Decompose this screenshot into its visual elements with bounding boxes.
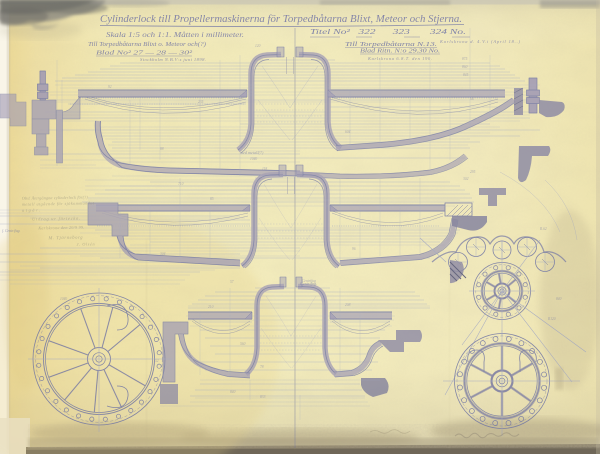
svg-text:Blad Ritn. N:o 29.30 No.: Blad Ritn. N:o 29.30 No. <box>360 48 440 55</box>
svg-text:120: 120 <box>255 44 261 48</box>
svg-text:1040: 1040 <box>60 297 67 301</box>
svg-text:78: 78 <box>260 365 264 369</box>
svg-text:210: 210 <box>208 305 214 309</box>
svg-text:295: 295 <box>470 170 476 174</box>
svg-text:Titel No² 322 323: Titel No² 322 323 324 No. <box>310 28 466 36</box>
svg-text:604: 604 <box>345 130 351 134</box>
svg-text:833: 833 <box>260 395 266 399</box>
svg-text:1040: 1040 <box>250 157 257 161</box>
svg-text:57: 57 <box>230 280 234 284</box>
svg-text:302: 302 <box>463 177 469 181</box>
svg-text:560: 560 <box>240 342 246 346</box>
svg-text:Skala 1:5 och 1:1. Måtten i: Skala 1:5 och 1:1. Måtten i millimeter. <box>106 31 244 39</box>
svg-text:845: 845 <box>463 73 469 77</box>
svg-text:118: 118 <box>262 167 267 171</box>
svg-text:208: 208 <box>345 303 351 307</box>
svg-text:Till Torpedbåtarna Blixt o. Me: Till Torpedbåtarna Blixt o. Meteor och(?… <box>88 41 206 48</box>
svg-text:Cylinderlock till Propellermas: Cylinderlock till Propellermaskinerna fö… <box>100 14 462 25</box>
svg-text:304: 304 <box>160 252 166 256</box>
svg-text:56: 56 <box>470 97 474 101</box>
svg-text:Utdrag ur förteckn.: Utdrag ur förteckn. <box>32 216 80 222</box>
svg-text:710: 710 <box>178 182 184 186</box>
svg-text:Karlskrona den 20/9 99.: Karlskrona den 20/9 99. <box>37 225 84 231</box>
svg-text:Blad No² 27 — 28 — 30²: Blad No² 27 — 28 — 30² <box>96 50 194 57</box>
svg-text:f. Centrifug.: f. Centrifug. <box>2 229 21 233</box>
svg-text:96: 96 <box>352 247 356 251</box>
svg-text:Karlskrona 6.8.T. den 190.: Karlskrona 6.8.T. den 190. <box>367 56 432 61</box>
svg-text:88: 88 <box>160 147 164 151</box>
svg-text:R.62: R.62 <box>539 227 547 231</box>
svg-text:840: 840 <box>230 390 236 394</box>
svg-text:85: 85 <box>210 197 214 201</box>
svg-text:R120: R120 <box>547 317 556 321</box>
svg-text:Stockholm N.B.V:s juni 1898.: Stockholm N.B.V:s juni 1898. <box>140 57 206 62</box>
svg-text:92: 92 <box>108 85 112 89</box>
svg-text:med metall(?): med metall(?) <box>240 150 264 155</box>
svg-text:J. Olsén: J. Olsén <box>77 241 95 246</box>
svg-text:235: 235 <box>198 100 204 104</box>
svg-text:Karlskrona d. 4.V.i (April 18.: Karlskrona d. 4.V.i (April 18..) <box>439 39 521 44</box>
svg-text:Centrifug: Centrifug <box>302 279 316 283</box>
svg-text:M. Tjörneborg: M. Tjörneborg <box>47 235 83 241</box>
svg-text:875: 875 <box>462 57 468 61</box>
svg-text:840: 840 <box>556 297 562 301</box>
svg-text:860: 860 <box>462 65 468 69</box>
svg-text:52: 52 <box>155 359 159 363</box>
